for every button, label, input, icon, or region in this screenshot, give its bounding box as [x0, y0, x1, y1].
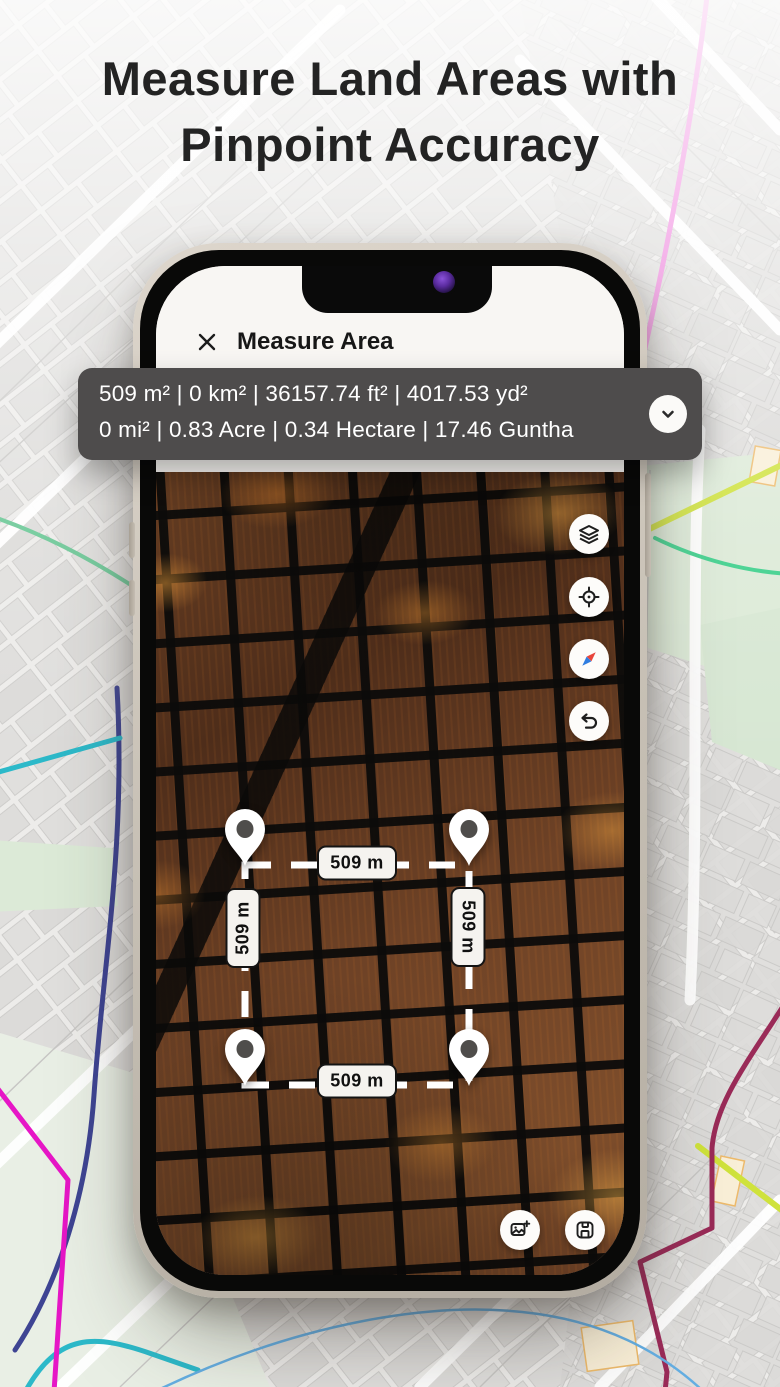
collapse-units-button[interactable] — [649, 395, 687, 433]
save-button[interactable] — [565, 1210, 605, 1250]
side-length-label-bottom: 509 m — [317, 1064, 397, 1099]
page-title-line2: Pinpoint Accuracy — [0, 112, 780, 178]
map-pin-icon[interactable] — [446, 1027, 492, 1087]
image-plus-icon — [508, 1218, 532, 1242]
chevron-down-icon — [657, 403, 679, 425]
locate-button[interactable] — [569, 577, 609, 617]
compass-button[interactable] — [569, 639, 609, 679]
power-button — [645, 473, 651, 577]
map-pin-icon[interactable] — [446, 807, 492, 867]
page-title-line1: Measure Land Areas with — [0, 46, 780, 112]
promo-screenshot: Measure Land Areas with Pinpoint Accurac… — [0, 0, 780, 1387]
measurement-line-1: 509 m² | 0 km² | 36157.74 ft² | 4017.53 … — [99, 381, 528, 407]
undo-button[interactable] — [569, 701, 609, 741]
close-icon — [193, 328, 221, 356]
side-length-label-left: 509 m — [226, 888, 261, 968]
phone-notch — [302, 266, 492, 313]
satellite-map[interactable]: 509 m 509 m 509 m 509 m — [156, 472, 624, 1275]
measurement-result-bar: 509 m² | 0 km² | 36157.74 ft² | 4017.53 … — [78, 368, 702, 460]
layers-icon — [577, 522, 601, 546]
side-length-label-right: 509 m — [451, 887, 486, 967]
undo-icon — [577, 709, 601, 733]
layers-button[interactable] — [569, 514, 609, 554]
side-length-label-top: 509 m — [317, 846, 397, 881]
map-pin-icon[interactable] — [222, 1027, 268, 1087]
locate-icon — [577, 585, 601, 609]
map-pin-icon[interactable] — [222, 807, 268, 867]
screenshot-add-button[interactable] — [500, 1210, 540, 1250]
page-title: Measure Land Areas with Pinpoint Accurac… — [0, 46, 780, 178]
volume-down-button — [129, 580, 135, 616]
save-icon — [573, 1218, 597, 1242]
front-camera — [433, 271, 455, 293]
compass-icon — [577, 647, 601, 671]
measurement-line-2: 0 mi² | 0.83 Acre | 0.34 Hectare | 17.46… — [99, 417, 574, 443]
volume-up-button — [129, 522, 135, 558]
screen-title: Measure Area — [237, 328, 394, 356]
close-button[interactable] — [193, 328, 221, 356]
